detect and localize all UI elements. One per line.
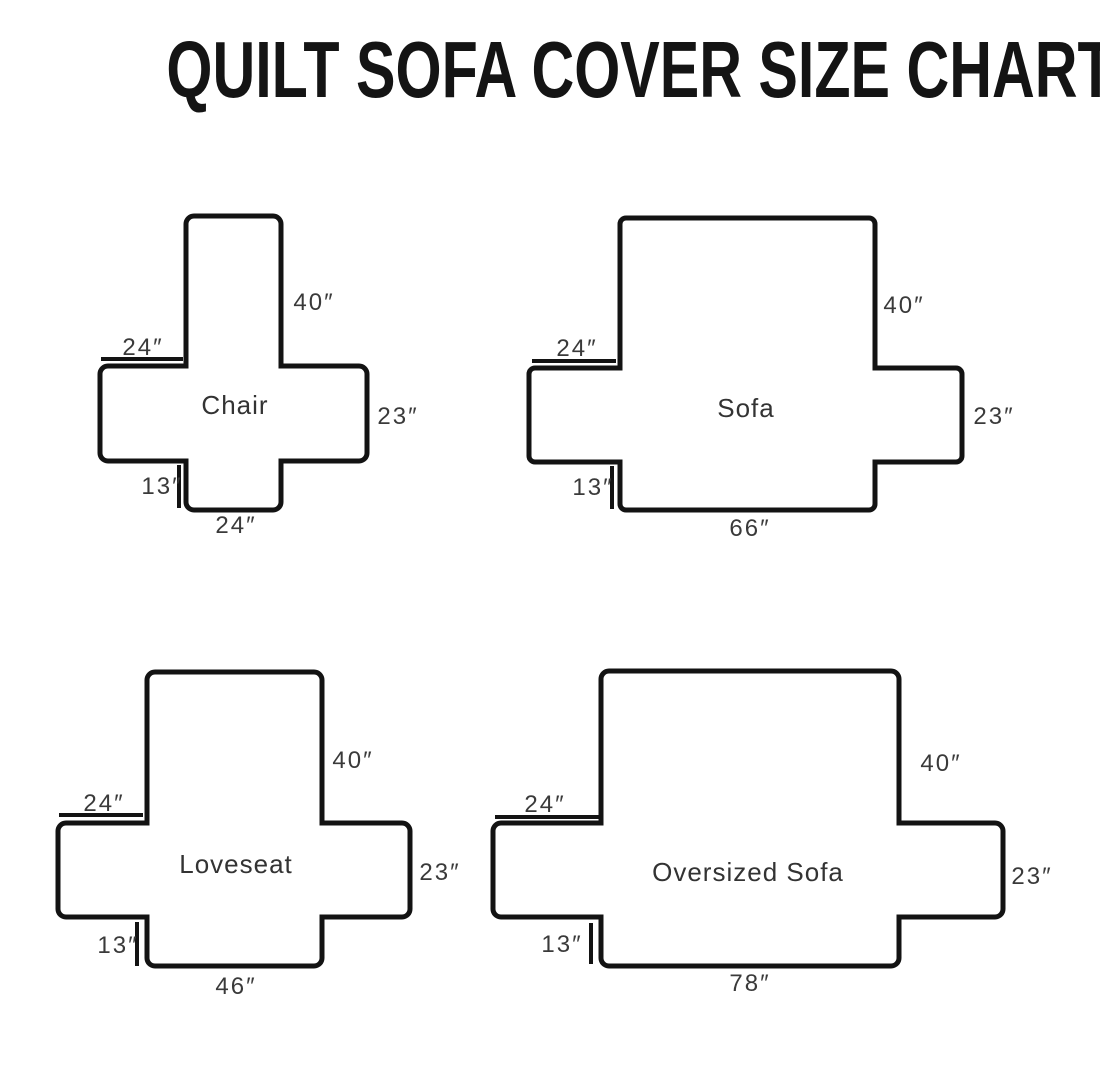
loveseat-skirt-label: 13″ (97, 934, 138, 958)
oversized-sofa-name-label: Oversized Sofa (652, 859, 844, 885)
loveseat-bottom-width-label: 46″ (215, 975, 256, 999)
chair-arm-side-label: 23″ (377, 405, 418, 429)
sofa-skirt-label: 13″ (572, 476, 613, 500)
chair-arm-width-label: 24″ (122, 336, 163, 360)
sofa-arm-width-label: 24″ (556, 337, 597, 361)
chair-bottom-width-label: 24″ (215, 514, 256, 538)
loveseat-arm-side-label: 23″ (419, 861, 460, 885)
chair-diagram-shape (100, 216, 367, 510)
oversized-sofa-diagram-shape (493, 671, 1003, 966)
chair-back-height-label: 40″ (293, 291, 334, 315)
sofa-back-height-label: 40″ (883, 294, 924, 318)
sofa-diagram-shape (529, 218, 962, 510)
cover-diagrams-canvas (0, 0, 1100, 1092)
sofa-arm-side-label: 23″ (973, 405, 1014, 429)
loveseat-name-label: Loveseat (179, 851, 293, 877)
oversized-sofa-bottom-width-label: 78″ (729, 972, 770, 996)
sofa-bottom-width-label: 66″ (729, 517, 770, 541)
loveseat-diagram-shape (58, 672, 410, 966)
oversized-sofa-back-height-label: 40″ (920, 752, 961, 776)
oversized-sofa-arm-width-label: 24″ (524, 793, 565, 817)
chair-skirt-label: 13″ (141, 475, 182, 499)
chair-outline (100, 216, 367, 510)
oversized-sofa-skirt-label: 13″ (541, 933, 582, 957)
sofa-name-label: Sofa (717, 395, 775, 421)
sofa-outline (529, 218, 962, 510)
oversized-sofa-arm-side-label: 23″ (1011, 865, 1052, 889)
size-chart-page: QUILT SOFA COVER SIZE CHART Chair 4 (0, 0, 1100, 1092)
loveseat-back-height-label: 40″ (332, 749, 373, 773)
loveseat-arm-width-label: 24″ (83, 792, 124, 816)
loveseat-outline (58, 672, 410, 966)
chair-name-label: Chair (201, 392, 268, 418)
